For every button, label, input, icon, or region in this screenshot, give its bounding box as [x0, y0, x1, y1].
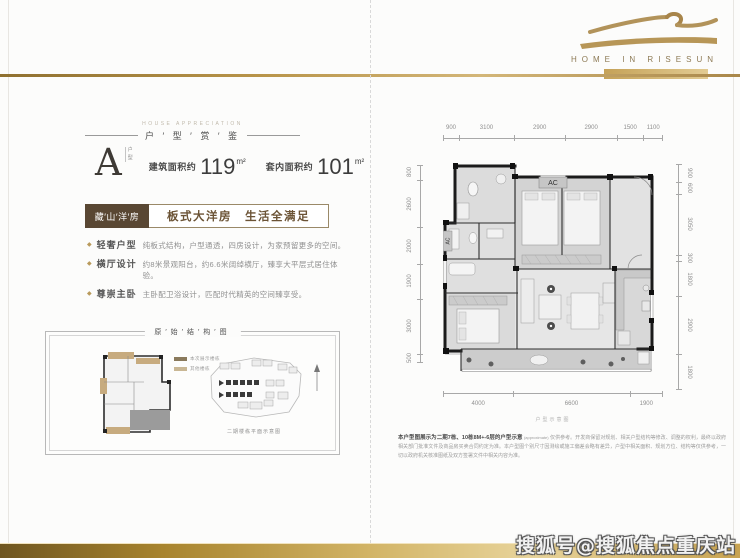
- net-area-label: 套内面积约: [266, 160, 314, 173]
- dim-label: 2000: [407, 239, 413, 252]
- main-floor-plan: AC AC: [443, 163, 663, 378]
- dim-label: 3050: [686, 218, 692, 231]
- dim-label: 3000: [407, 320, 413, 333]
- dim-label: 2600: [407, 197, 413, 210]
- net-area-value: 101: [317, 158, 354, 177]
- feature-item: ◆ 横厅设计 约8米景观阳台，约6.6米阔绰横厅，臻享大平层式居住体验。: [87, 259, 347, 281]
- feature-title: 尊崇主卧: [97, 289, 143, 300]
- north-arrow-icon: [312, 364, 322, 394]
- structure-box-title: 原′始′结′构′图: [144, 327, 240, 337]
- plan-caption: 户型示意图: [443, 416, 663, 423]
- dim-label: 1900: [407, 275, 413, 288]
- header-rule-right: [247, 135, 300, 136]
- brochure-page: HOME IN RISESUN HOUSE APPRECIATION 户 ′ 型…: [0, 0, 740, 558]
- feature-item: ◆ 轻奢户型 纯板式结构，户型通透，四房设计，为家预留更多的空间。: [87, 240, 347, 251]
- dim-label: 2900: [584, 125, 597, 131]
- dim-label: 1500: [623, 125, 636, 131]
- site-plan: [204, 354, 304, 422]
- feature-list: ◆ 轻奢户型 纯板式结构，户型通透，四房设计，为家预留更多的空间。 ◆ 横厅设计…: [87, 240, 347, 308]
- unit-letter-tag: 户型: [125, 147, 133, 162]
- net-area-unit: m²: [355, 157, 364, 166]
- disclaimer-note: (approximate): [524, 435, 549, 440]
- dimension-line-bottom: 4000 6600 1900: [443, 393, 663, 406]
- original-structure-box: 原′始′结′构′图 本次展示楼栋 其他楼栋: [45, 331, 340, 455]
- dim-label: 1800: [686, 365, 692, 378]
- diamond-bullet-icon: ◆: [87, 259, 92, 270]
- slogan-banner: 藏′山′洋′房 板式大洋房 生活全满足: [85, 204, 329, 228]
- dimension-line-left: 800 2600 2000 1900 3000 500: [407, 165, 421, 363]
- dim-label: 4000: [472, 401, 485, 407]
- site-plan-caption: 二期楼栋平面示意图: [196, 428, 312, 435]
- dim-label: 2900: [686, 319, 692, 332]
- unit-summary: A 户型 建筑面积约 119 m² 套内面积约 101 m²: [95, 147, 364, 178]
- feature-item: ◆ 尊崇主卧 主卧配卫浴设计，匹配时代精英的空间臻享受。: [87, 289, 347, 300]
- banner-tag: 藏′山′洋′房: [85, 204, 149, 228]
- section-header-zh: 户 ′ 型 ′ 赏 ′ 鉴: [145, 129, 240, 142]
- section-header: HOUSE APPRECIATION 户 ′ 型 ′ 赏 ′ 鉴: [85, 121, 300, 142]
- brand-logo: HOME IN RISESUN: [520, 6, 720, 72]
- unit-letter: A: [95, 147, 122, 178]
- dim-label: 500: [407, 353, 413, 363]
- disclaimer-lead: 本户型图展示为二期7栋、10栋8M+-6层的户型示意: [398, 435, 523, 441]
- dim-label: 3100: [480, 125, 493, 131]
- gross-area: 建筑面积约 119 m²: [149, 157, 246, 176]
- net-area: 套内面积约 101 m²: [266, 157, 365, 176]
- dim-label: 600: [686, 183, 692, 193]
- feature-title: 轻奢户型: [97, 240, 143, 251]
- feature-title: 横厅设计: [97, 259, 143, 270]
- center-fold-line: [370, 0, 371, 543]
- feature-desc: 约8米景观阳台，约6.6米阔绰横厅，臻享大平层式居住体验。: [143, 259, 347, 281]
- feature-desc: 纯板式结构，户型通透，四房设计，为家预留更多的空间。: [143, 240, 347, 251]
- dim-label: 6600: [565, 401, 578, 407]
- legend-swatch: [174, 357, 187, 361]
- dim-label: 900: [686, 168, 692, 178]
- dim-label: 2900: [533, 125, 546, 131]
- gross-area-unit: m²: [236, 157, 245, 166]
- dim-label: 1100: [647, 125, 660, 131]
- mountain-brush-icon: [520, 6, 720, 54]
- dim-label: 800: [407, 167, 413, 177]
- mini-structure-plan: [94, 348, 176, 442]
- legend-swatch: [174, 367, 187, 371]
- dimension-line-right: 900 600 3050 300 1800 2900 1800: [678, 164, 692, 390]
- brand-wordmark: HOME IN RISESUN: [520, 55, 718, 64]
- feature-desc: 主卧配卫浴设计，匹配时代精英的空间臻享受。: [143, 289, 347, 300]
- right-edge-line: [733, 0, 734, 543]
- gross-area-value: 119: [200, 158, 235, 177]
- ac-label-top: AC: [548, 180, 558, 187]
- diamond-bullet-icon: ◆: [87, 240, 92, 251]
- dimension-line-top: 900 3100 2900 2900 1500 1100: [443, 126, 663, 139]
- banner-slogan: 板式大洋房 生活全满足: [149, 204, 329, 228]
- diamond-bullet-icon: ◆: [87, 289, 92, 300]
- dim-label: 1800: [686, 272, 692, 285]
- gross-area-label: 建筑面积约: [149, 160, 197, 173]
- dim-label: 900: [446, 125, 456, 131]
- ac-label-left: AC: [446, 237, 452, 244]
- left-edge-line: [8, 0, 9, 543]
- section-header-en: HOUSE APPRECIATION: [85, 121, 300, 127]
- disclaimer-text: 本户型图展示为二期7栋、10栋8M+-6层的户型示意 (approximate)…: [398, 433, 726, 461]
- dim-label: 1900: [640, 401, 653, 407]
- watermark: 搜狐号@搜狐焦点重庆站: [516, 531, 736, 558]
- header-rule-left: [85, 135, 138, 136]
